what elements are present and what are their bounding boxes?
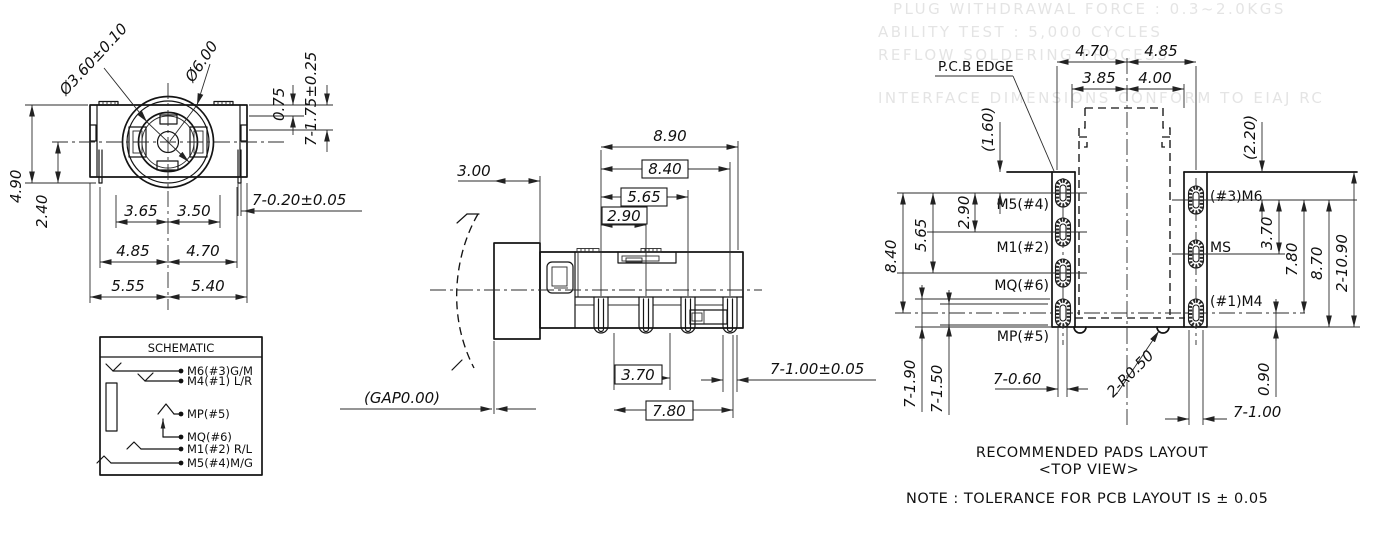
- front-dim-pins-len: 7-1.75±0.25: [302, 52, 320, 146]
- ghost-line-4: INTERFACE DIMENSIONS CONFORM TO EIAJ RC: [878, 89, 1324, 107]
- pcb-dim-1090: 2-10.90: [1333, 234, 1351, 292]
- pcb-dim-485: 4.85: [1144, 42, 1177, 60]
- front-dim-height-total: 4.90: [7, 170, 25, 203]
- front-dimensions: Ø3.60±0.10 Ø6.00 4.90 2.40 3.65 3.50 4.8…: [7, 20, 362, 303]
- notes: RECOMMENDED PADS LAYOUT <TOP VIEW> NOTE …: [906, 445, 1268, 507]
- side-panel-arc: [452, 214, 479, 370]
- front-dim-w1r: 3.50: [177, 202, 210, 220]
- schematic-title: SCHEMATIC: [148, 341, 215, 355]
- pcb-dim-160: (1.60): [979, 107, 997, 152]
- pcb-pad-labels: M5(#4) M1(#2) MQ(#6) MP(#5) (#3)M6 MS (#…: [994, 189, 1262, 345]
- footer-note: NOTE : TOLERANCE FOR PCB LAYOUT IS ± 0.0…: [906, 491, 1268, 507]
- front-dim-w2r: 4.70: [186, 242, 219, 260]
- schematic-pin-mp: MP(#5): [187, 407, 230, 421]
- front-dim-outer-dia: Ø6.00: [181, 38, 222, 86]
- schematic-rows: M6(#3)G/M M4(#1) L/R MP(#5) MQ(#6) M1(#2…: [97, 363, 253, 470]
- pcb-dim-090: 0.90: [1255, 363, 1273, 396]
- pcb-dim-radius: 2-R0.50: [1103, 347, 1157, 401]
- schematic-box: SCHEMATIC M6(#3)G/M M4(#1) L/R MP(#5) MQ…: [97, 337, 262, 475]
- schematic-pin-m1: M1(#2) R/L: [187, 442, 253, 456]
- pcb-dim-370r: 3.70: [1258, 217, 1276, 250]
- ghost-line-1: PLUG WITHDRAWAL FORCE : 0.3~2.0KGS: [893, 0, 1286, 18]
- side-dim-total-len: 8.90: [653, 127, 686, 145]
- front-dim-w3r: 5.40: [191, 277, 224, 295]
- side-dim-780: 7.80: [652, 402, 685, 420]
- side-view-outline: [494, 243, 743, 339]
- ghost-line-3: REFLOW SOLDERING PROCESS: [878, 46, 1169, 64]
- pcb-dim-hole-w: 7-0.60: [993, 370, 1041, 388]
- front-dim-w2l: 4.85: [116, 242, 149, 260]
- pcb-dim-220: (2.20): [1241, 115, 1259, 160]
- pad-label-mq: MQ(#6): [994, 278, 1049, 294]
- front-view: Ø3.60±0.10 Ø6.00 4.90 2.40 3.65 3.50 4.8…: [7, 20, 362, 310]
- drawing-canvas: PLUG WITHDRAWAL FORCE : 0.3~2.0KGS ABILI…: [0, 0, 1394, 538]
- side-view: 3.00 8.90 8.40 5.65 2.90: [340, 127, 876, 420]
- front-dim-w1l: 3.65: [124, 202, 157, 220]
- pcb-dim-hole-len: 7-1.50: [928, 365, 946, 413]
- pcb-pads-right: [1189, 186, 1204, 327]
- side-dim-840: 8.40: [648, 160, 681, 178]
- front-left-leg: [99, 150, 102, 183]
- pcb-body-dashed: [1075, 108, 1185, 318]
- schematic-sleeve-symbol: [106, 383, 117, 431]
- front-dim-step-depth: 0.75: [270, 88, 288, 121]
- pcb-edge-label: P.C.B EDGE: [938, 59, 1014, 75]
- pcb-dim-565: 5.65: [912, 219, 930, 252]
- pad-label-m4: (#1)M4: [1210, 294, 1263, 310]
- pcb-dim-870: 8.70: [1308, 247, 1326, 280]
- pcb-dim-470: 4.70: [1075, 42, 1108, 60]
- pad-mp: [1056, 299, 1071, 327]
- footer-title: RECOMMENDED PADS LAYOUT: [976, 445, 1208, 461]
- side-dim-290: 2.90: [607, 207, 640, 225]
- pad-label-m5: M5(#4): [996, 197, 1049, 213]
- pcb-dim-400: 4.00: [1138, 69, 1171, 87]
- technical-drawing: PLUG WITHDRAWAL FORCE : 0.3~2.0KGS ABILI…: [0, 0, 1394, 538]
- pcb-dim-pad-len: 7-1.90: [901, 360, 919, 408]
- pcb-dim-840: 8.40: [882, 240, 900, 273]
- pad-label-m6: (#3)M6: [1210, 189, 1263, 205]
- ghost-line-2: ABILITY TEST : 5,000 CYCLES: [878, 23, 1162, 41]
- side-dim-370: 3.70: [621, 366, 654, 384]
- pcb-dim-pad-w: 7-1.00: [1233, 403, 1281, 421]
- front-dim-w3l: 5.55: [111, 277, 144, 295]
- pad-label-mp: MP(#5): [997, 329, 1049, 345]
- pad-label-m1: M1(#2): [996, 240, 1049, 256]
- front-dim-height-lower: 2.40: [33, 195, 51, 228]
- pad-m4: [1189, 299, 1204, 327]
- side-dim-gap: (GAP0.00): [364, 389, 440, 407]
- schematic-pin-m5: M5(#4)M/G: [187, 456, 253, 470]
- side-dim-front-len: 3.00: [457, 162, 490, 180]
- side-dim-pin-width: 7-1.00±0.05: [770, 360, 864, 378]
- side-dim-565: 5.65: [627, 188, 660, 206]
- pcb-dim-780r: 7.80: [1283, 243, 1301, 276]
- schematic-pin-m4: M4(#1) L/R: [187, 374, 252, 388]
- footer-subtitle: <TOP VIEW>: [1039, 462, 1140, 478]
- front-dim-pin-thick: 7-0.20±0.05: [252, 191, 346, 209]
- pcb-dim-385: 3.85: [1082, 69, 1115, 87]
- side-dimensions: 3.00 8.90 8.40 5.65 2.90: [340, 127, 876, 420]
- pcb-dim-290: 2.90: [955, 196, 973, 229]
